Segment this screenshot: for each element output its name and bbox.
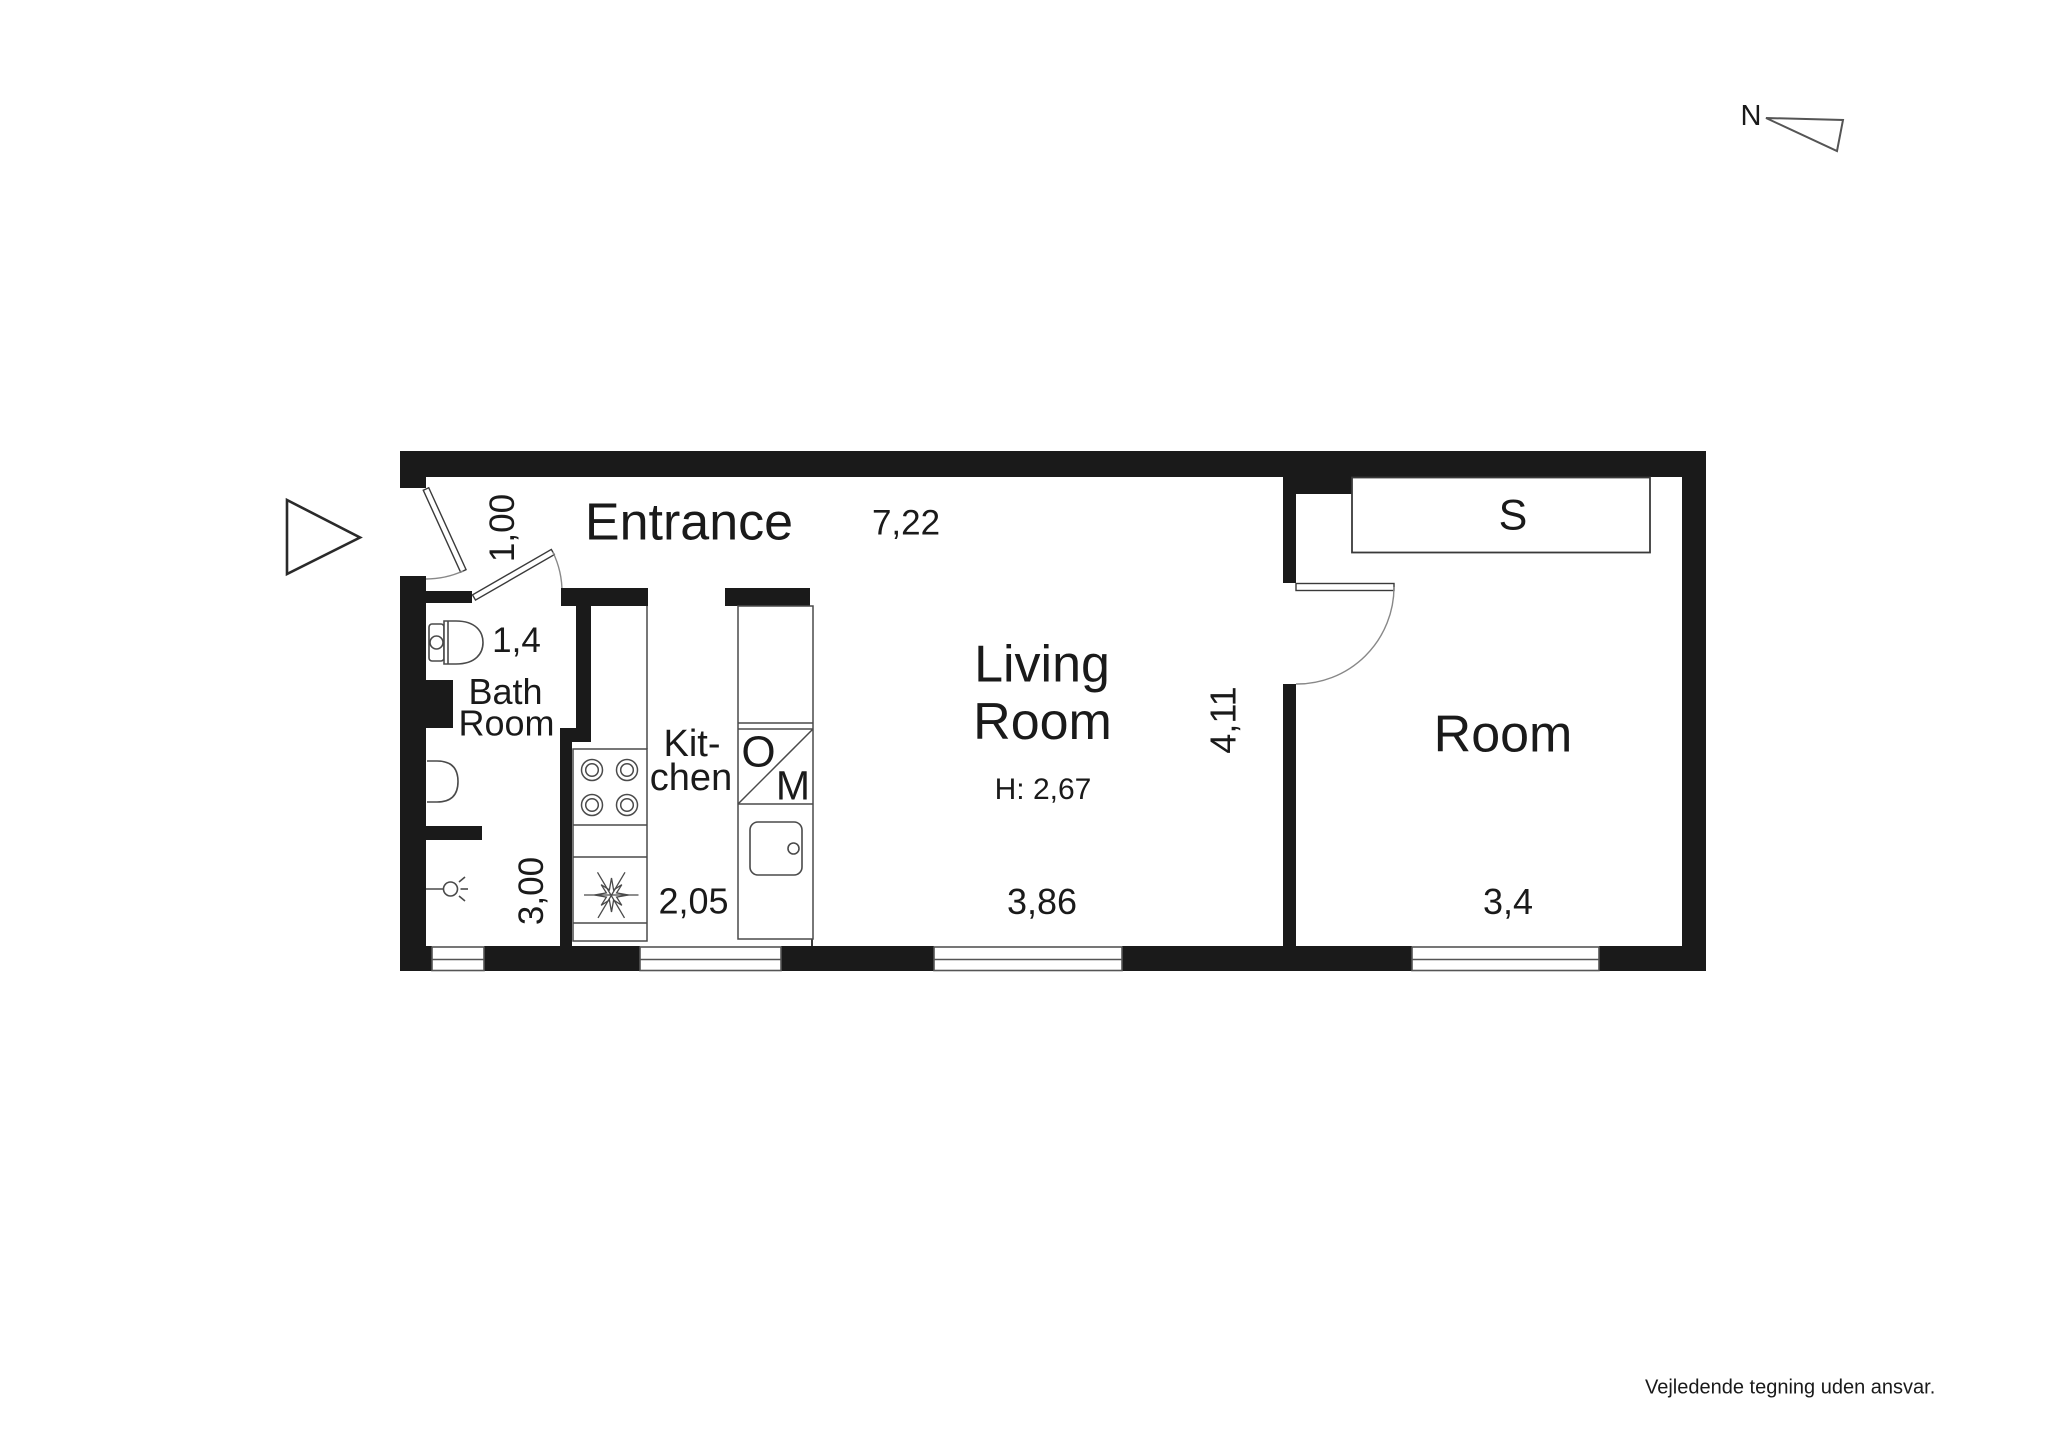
svg-text:3,86: 3,86	[1007, 881, 1077, 922]
svg-text:1,00: 1,00	[483, 494, 522, 562]
svg-text:2,05: 2,05	[658, 881, 728, 922]
svg-text:7,22: 7,22	[872, 504, 940, 543]
svg-text:Room: Room	[458, 703, 554, 744]
svg-text:N: N	[1741, 100, 1762, 132]
svg-text:1,4: 1,4	[492, 621, 541, 660]
svg-text:4,11: 4,11	[1203, 686, 1244, 753]
svg-text:M: M	[776, 763, 810, 809]
svg-text:3,00: 3,00	[512, 857, 551, 925]
svg-text:Room: Room	[973, 693, 1112, 751]
svg-text:Entrance: Entrance	[585, 494, 793, 552]
svg-text:3,4: 3,4	[1483, 881, 1533, 922]
svg-text:S: S	[1499, 492, 1528, 540]
svg-text:H: 2,67: H: 2,67	[995, 773, 1092, 806]
svg-text:Vejledende tegning uden ansvar: Vejledende tegning uden ansvar.	[1645, 1377, 1935, 1399]
svg-text:Room: Room	[1434, 706, 1573, 764]
svg-text:O: O	[741, 728, 775, 777]
svg-text:chen: chen	[650, 757, 732, 799]
svg-text:Living: Living	[974, 636, 1110, 694]
